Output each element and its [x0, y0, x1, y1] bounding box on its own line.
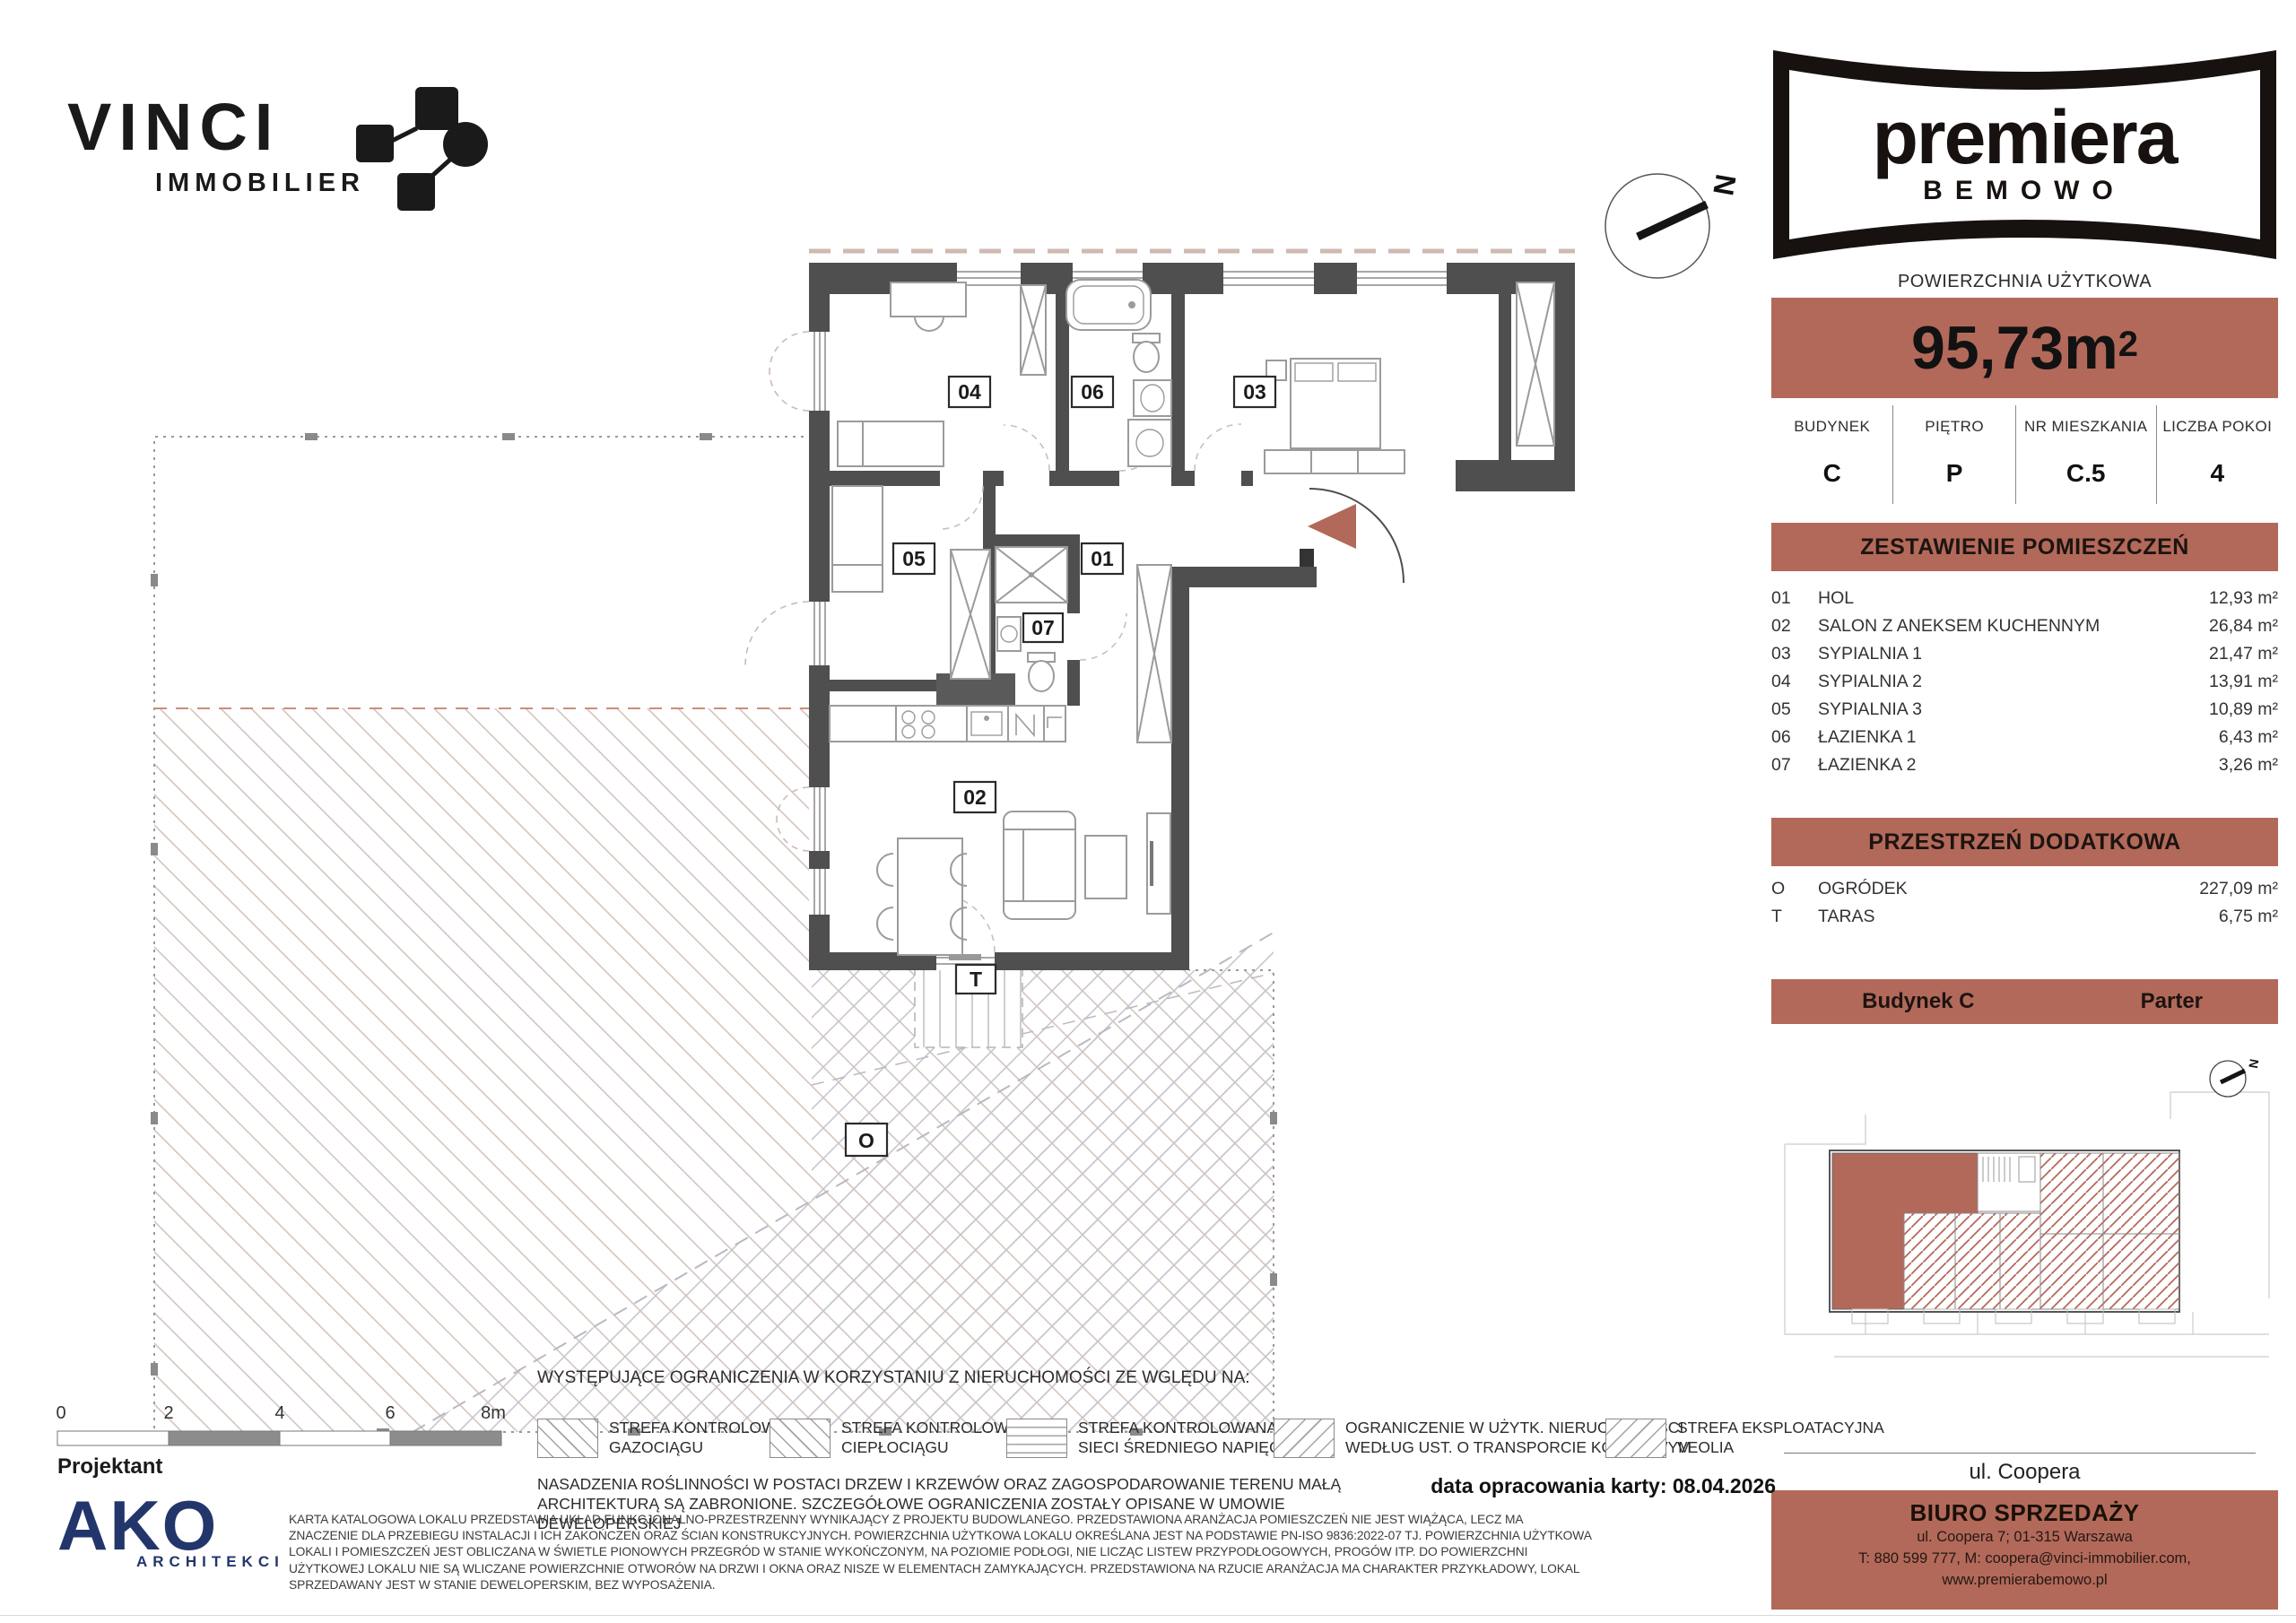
- field-budynek: BUDYNEK C: [1771, 405, 1892, 504]
- unit-fields: BUDYNEK C PIĘTRO P NR MIESZKANIA C.5 LIC…: [1771, 405, 2278, 504]
- svg-text:05: 05: [902, 547, 926, 570]
- street-label: ul. Coopera: [1771, 1460, 2278, 1485]
- sales-office-title: BIURO SPRZEDAŻY: [1771, 1490, 2278, 1527]
- premiera-bemowo-logo: premiera BEMOWO: [1771, 45, 2278, 265]
- svg-text:premiera: premiera: [1873, 95, 2179, 179]
- svg-text:03: 03: [1243, 380, 1266, 404]
- hatch-swatch-icon: [770, 1419, 831, 1458]
- room-label-04: 04: [949, 377, 990, 407]
- room-label-06: 06: [1072, 377, 1113, 407]
- sales-office-contact: T: 880 599 777, M: coopera@vinci-immobil…: [1771, 1549, 2278, 1570]
- hatch-swatch-icon: [1274, 1419, 1335, 1458]
- svg-text:02: 02: [963, 785, 987, 809]
- minimap-compass-icon: N: [2210, 1058, 2262, 1097]
- svg-text:VINCI: VINCI: [67, 90, 280, 164]
- designer-label: Projektant: [57, 1454, 162, 1480]
- catalog-card-page: 04 06 03 05 01 07 02 T O N 0 2 4 6 8m: [0, 0, 2296, 1623]
- sales-office-website: www.premierabemowo.pl: [1771, 1570, 2278, 1592]
- field-pietro: PIĘTRO P: [1892, 405, 2014, 504]
- svg-text:N: N: [2246, 1058, 2262, 1070]
- ako-logo-name: AKO: [57, 1490, 284, 1560]
- table-row: 06ŁAZIENKA 16,43 m²: [1771, 724, 2278, 751]
- svg-text:0: 0: [56, 1403, 65, 1423]
- garden-label: O: [846, 1124, 887, 1156]
- bottom-divider: [0, 1615, 2296, 1616]
- sales-office-address: ul. Coopera 7; 01-315 Warszawa: [1771, 1527, 2278, 1549]
- rooms-table: 01HOL12,93 m² 02SALON Z ANEKSEM KUCHENNY…: [1771, 585, 2278, 779]
- table-row: 05SYPIALNIA 310,89 m²: [1771, 696, 2278, 724]
- ako-architekci-logo: AKO ARCHITEKCI: [57, 1490, 284, 1571]
- table-row: 03SYPIALNIA 121,47 m²: [1771, 640, 2278, 668]
- svg-text:04: 04: [958, 380, 981, 404]
- room-label-05: 05: [893, 543, 935, 574]
- svg-text:O: O: [858, 1129, 874, 1152]
- date-note: data opracowania karty: 08.04.2026: [1238, 1474, 1776, 1498]
- entry-door-arc: [1309, 489, 1404, 583]
- vinci-immobilier-logo: VINCI IMMOBILIER: [67, 85, 498, 238]
- table-row: 07ŁAZIENKA 23,26 m²: [1771, 751, 2278, 779]
- svg-text:BEMOWO: BEMOWO: [1923, 176, 2126, 205]
- svg-text:2: 2: [163, 1403, 173, 1423]
- field-nr-mieszkania: NR MIESZKANIA C.5: [2015, 405, 2156, 504]
- building-floor-bar: Budynek C Parter: [1771, 979, 2278, 1024]
- table-row: TTARAS6,75 m²: [1771, 903, 2278, 931]
- legend-item-gazociag: STREFA KONTROLOWANAGAZOCIĄGU: [537, 1419, 808, 1458]
- ako-logo-sub: ARCHITEKCI: [136, 1553, 284, 1571]
- extra-table: OOGRÓDEK227,09 m² TTARAS6,75 m²: [1771, 875, 2278, 931]
- room-label-01: 01: [1082, 543, 1123, 574]
- area-sup: 2: [2118, 325, 2138, 364]
- sales-office-box: BIURO SPRZEDAŻY ul. Coopera 7; 01-315 Wa…: [1771, 1490, 2278, 1610]
- hatch-swatch-icon: [537, 1419, 598, 1458]
- table-row: 02SALON Z ANEKSEM KUCHENNYM26,84 m²: [1771, 612, 2278, 640]
- area-value: 95,73m: [1911, 314, 2118, 382]
- svg-text:T: T: [970, 968, 982, 991]
- hatch-swatch-icon: [1605, 1419, 1666, 1458]
- svg-text:IMMOBILIER: IMMOBILIER: [155, 169, 365, 197]
- site-minimap: N: [1771, 1029, 2278, 1388]
- room-label-03: 03: [1234, 377, 1275, 407]
- svg-text:4: 4: [274, 1403, 284, 1423]
- room-label-02: 02: [954, 782, 996, 812]
- table-row: OOGRÓDEK227,09 m²: [1771, 875, 2278, 903]
- svg-text:07: 07: [1031, 616, 1055, 639]
- legend-intro: WYSTĘPUJĄCE OGRANICZENIA W KORZYSTANIU Z…: [537, 1368, 1250, 1388]
- room-label-07: 07: [1023, 613, 1063, 642]
- extra-section-title: PRZESTRZEŃ DODATKOWA: [1771, 818, 2278, 866]
- svg-text:N: N: [1707, 172, 1742, 198]
- floor-name: Parter: [2066, 989, 2278, 1014]
- table-row: 01HOL12,93 m²: [1771, 585, 2278, 612]
- svg-text:8m: 8m: [481, 1403, 506, 1423]
- legend-item-veolia: STREFA EKSPLOATACYJNAVEOLIA: [1605, 1419, 1884, 1458]
- hatch-swatch-icon: [1006, 1419, 1067, 1458]
- area-box: 95,73m2: [1771, 298, 2278, 398]
- svg-text:06: 06: [1081, 380, 1104, 404]
- svg-text:01: 01: [1091, 547, 1114, 570]
- building-outline: [1830, 1150, 2179, 1324]
- table-row: 04SYPIALNIA 213,91 m²: [1771, 668, 2278, 696]
- legend-item-cieplociag: STREFA KONTROLOWANACIEPŁOCIĄGU: [770, 1419, 1040, 1458]
- vinci-mark-icon: [356, 87, 488, 211]
- area-label: POWIERZCHNIA UŻYTKOWA: [1771, 272, 2278, 292]
- legend-item-siec: STREFA KONTROLOWANASIECI ŚREDNIEGO NAPIĘ…: [1006, 1419, 1295, 1458]
- north-compass-icon: N: [1605, 172, 1743, 278]
- disclaimer-text: KARTA KATALOGOWA LOKALU PRZEDSTAWIA UKŁA…: [289, 1512, 1595, 1593]
- terrace-label: T: [956, 965, 996, 994]
- svg-text:6: 6: [385, 1403, 395, 1423]
- rooms-section-title: ZESTAWIENIE POMIESZCZEŃ: [1771, 523, 2278, 571]
- building-name: Budynek C: [1771, 989, 2066, 1014]
- field-liczba-pokoi: LICZBA POKOI 4: [2156, 405, 2278, 504]
